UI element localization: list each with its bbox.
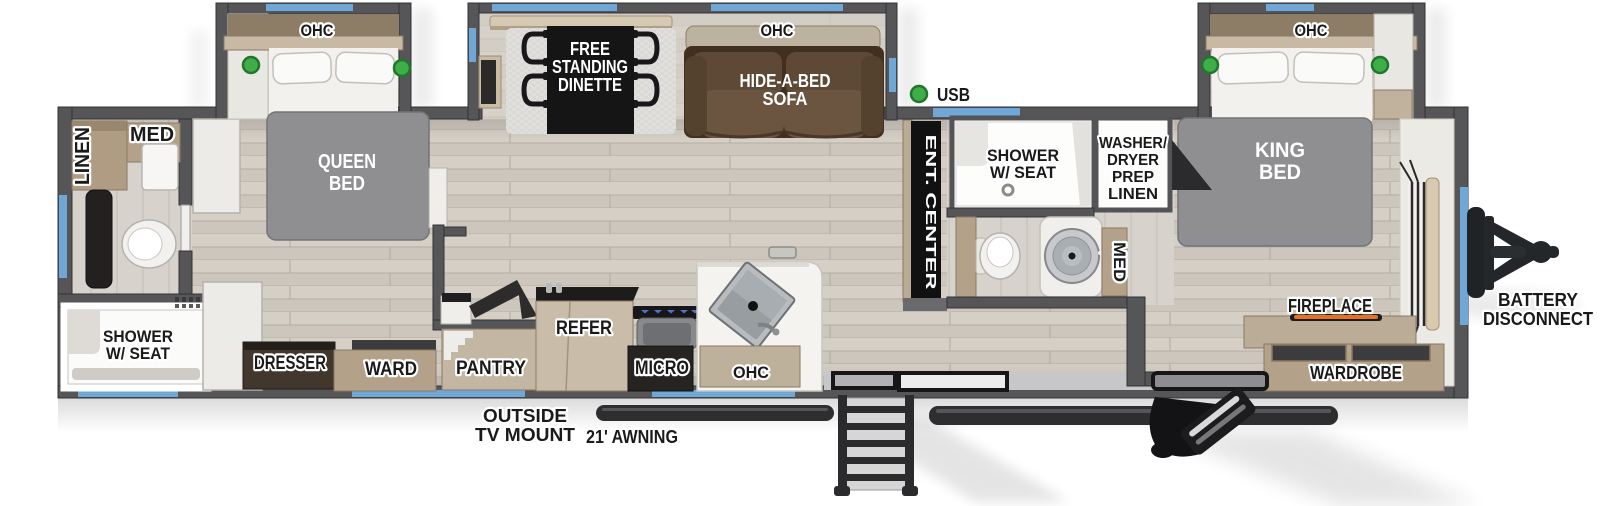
- svg-text:REFER: REFER: [556, 318, 612, 339]
- svg-text:BED: BED: [1259, 161, 1301, 184]
- svg-text:PREP: PREP: [1112, 169, 1154, 186]
- svg-text:MED: MED: [1110, 242, 1129, 282]
- svg-text:PANTRY: PANTRY: [456, 358, 526, 379]
- svg-text:BATTERY: BATTERY: [1498, 290, 1578, 310]
- svg-text:OHC: OHC: [761, 21, 794, 40]
- svg-text:OHC: OHC: [1295, 21, 1328, 40]
- svg-text:OUTSIDE: OUTSIDE: [483, 406, 567, 426]
- svg-text:MED: MED: [130, 124, 174, 146]
- svg-text:W/ SEAT: W/ SEAT: [106, 344, 171, 363]
- svg-text:OHC: OHC: [733, 363, 769, 382]
- svg-text:OHC: OHC: [301, 21, 334, 40]
- svg-text:MICRO: MICRO: [635, 358, 689, 379]
- svg-text:LINEN: LINEN: [1108, 186, 1158, 203]
- svg-text:WARD: WARD: [365, 359, 417, 380]
- svg-text:TV MOUNT: TV MOUNT: [475, 425, 575, 445]
- svg-text:SOFA: SOFA: [763, 88, 808, 109]
- svg-text:DRESSER: DRESSER: [254, 353, 326, 374]
- svg-text:BED: BED: [329, 173, 365, 195]
- svg-text:KING: KING: [1255, 139, 1305, 162]
- svg-text:FREE: FREE: [570, 39, 610, 59]
- svg-text:USB: USB: [937, 85, 970, 105]
- svg-text:FIREPLACE: FIREPLACE: [1288, 296, 1372, 316]
- svg-text:W/ SEAT: W/ SEAT: [990, 163, 1057, 182]
- svg-text:DRYER: DRYER: [1107, 152, 1159, 169]
- svg-text:21' AWNING: 21' AWNING: [586, 427, 678, 447]
- svg-text:WARDROBE: WARDROBE: [1310, 363, 1402, 383]
- svg-text:WASHER/: WASHER/: [1099, 135, 1168, 152]
- svg-text:QUEEN: QUEEN: [318, 151, 376, 173]
- svg-text:STANDING: STANDING: [552, 57, 628, 77]
- svg-text:DISCONNECT: DISCONNECT: [1483, 309, 1593, 329]
- svg-text:DINETTE: DINETTE: [558, 75, 622, 95]
- svg-text:ENT. CENTER: ENT. CENTER: [922, 135, 939, 290]
- svg-text:LINEN: LINEN: [72, 127, 94, 185]
